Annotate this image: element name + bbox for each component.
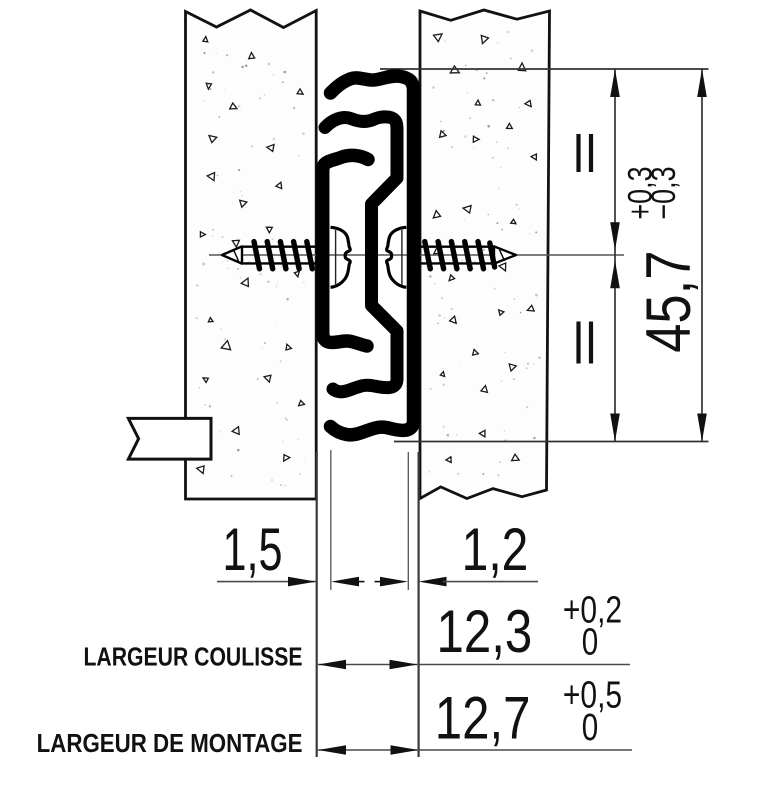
svg-text:1,2: 1,2 xyxy=(462,516,529,583)
svg-text:12,3: 12,3 xyxy=(437,597,533,665)
svg-text:45,7: 45,7 xyxy=(634,251,705,353)
svg-text:1,5: 1,5 xyxy=(222,517,282,584)
svg-text:−0,3: −0,3 xyxy=(645,166,683,219)
svg-text:LARGEUR COULISSE: LARGEUR COULISSE xyxy=(83,643,302,671)
svg-text:12,7: 12,7 xyxy=(435,684,531,752)
svg-text:0: 0 xyxy=(582,707,598,749)
svg-text:LARGEUR DE MONTAGE: LARGEUR DE MONTAGE xyxy=(37,729,303,758)
svg-text:0: 0 xyxy=(582,621,598,663)
